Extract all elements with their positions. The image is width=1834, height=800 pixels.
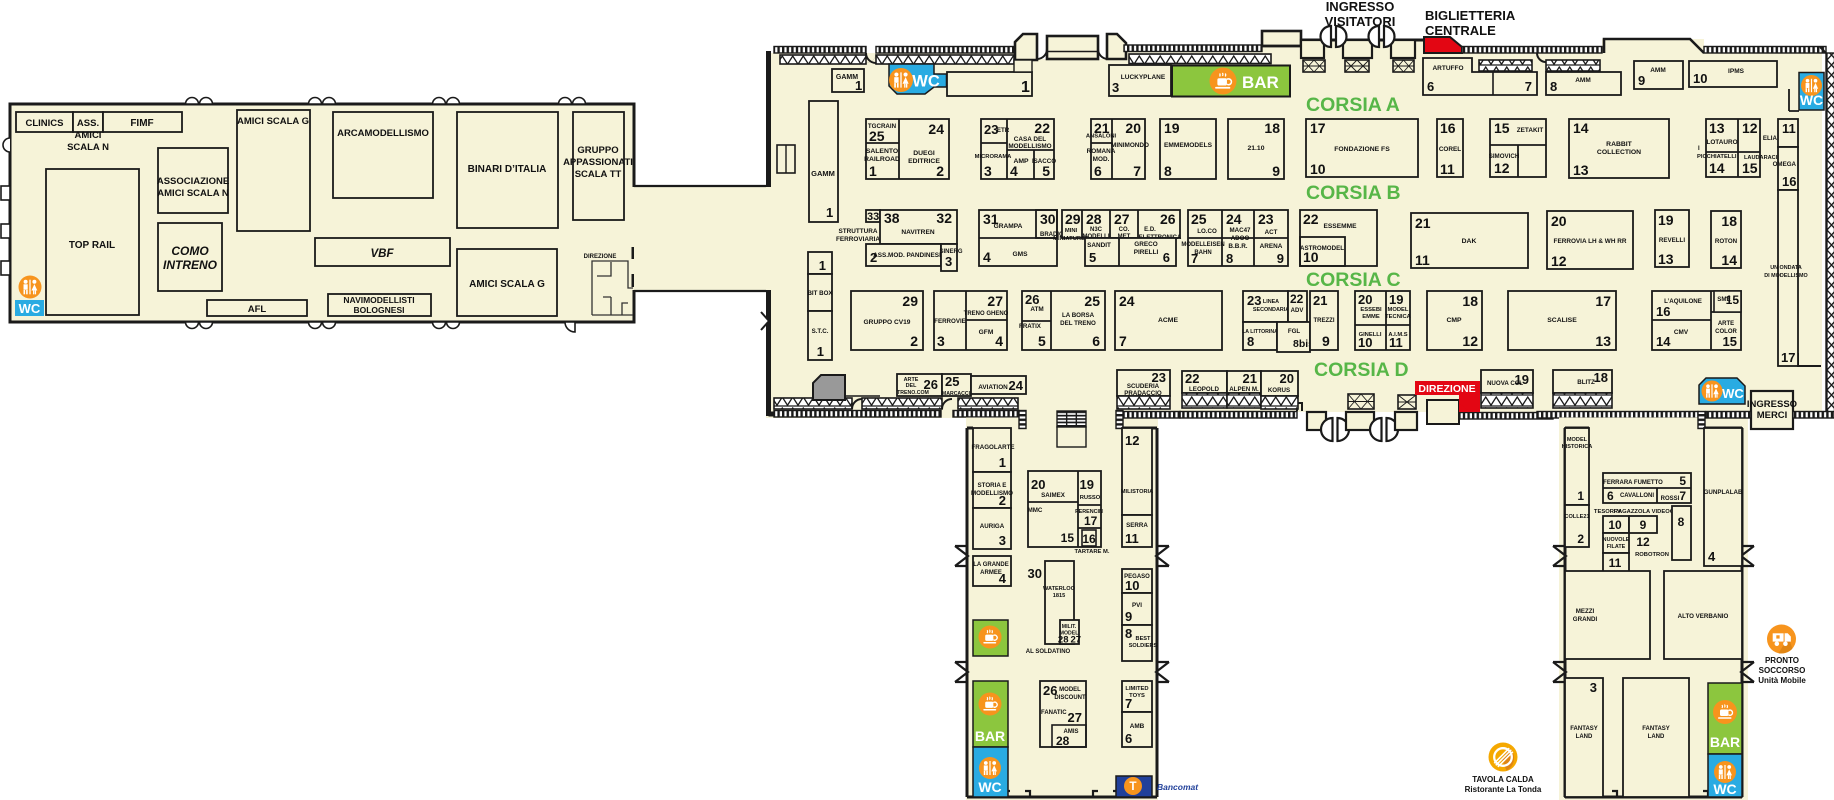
svg-text:RAGAZZOLA: RAGAZZOLA: [1614, 509, 1651, 515]
svg-text:ARTUFFO: ARTUFFO: [1432, 65, 1463, 72]
svg-text:5: 5: [1089, 250, 1096, 265]
svg-text:DUEGI: DUEGI: [913, 150, 935, 157]
svg-text:CORSIA C: CORSIA C: [1306, 269, 1401, 291]
svg-text:INGRESSO: INGRESSO: [1326, 0, 1395, 14]
svg-text:NAVITREN: NAVITREN: [901, 229, 934, 236]
svg-text:16: 16: [1082, 532, 1096, 546]
svg-text:13: 13: [1709, 120, 1725, 136]
svg-text:AL SOLDATINO: AL SOLDATINO: [1026, 649, 1071, 655]
svg-text:S.T.C.: S.T.C.: [812, 328, 829, 335]
svg-text:MOD.: MOD.: [1093, 156, 1110, 163]
svg-text:8: 8: [1247, 334, 1254, 349]
svg-text:3: 3: [1112, 80, 1119, 95]
svg-text:ADOO: ADOO: [1231, 235, 1250, 242]
svg-text:17: 17: [1781, 350, 1795, 365]
svg-text:7: 7: [1525, 79, 1532, 94]
svg-text:15: 15: [1723, 334, 1737, 349]
svg-text:ASSOCIAZIONE: ASSOCIAZIONE: [157, 176, 229, 187]
svg-text:8: 8: [1125, 626, 1132, 641]
svg-text:ADV: ADV: [1291, 308, 1304, 314]
svg-text:11: 11: [1440, 161, 1455, 177]
svg-text:TOP RAIL: TOP RAIL: [69, 240, 115, 251]
svg-text:20: 20: [1125, 120, 1141, 136]
svg-text:LA BORSA: LA BORSA: [1062, 312, 1095, 319]
svg-text:15: 15: [1494, 120, 1510, 136]
svg-text:BLITZ: BLITZ: [1577, 379, 1595, 386]
svg-text:ALPEN M.: ALPEN M.: [1229, 386, 1259, 393]
svg-text:19: 19: [1164, 120, 1180, 136]
svg-text:ARENA: ARENA: [1260, 243, 1283, 250]
svg-text:10: 10: [1358, 335, 1372, 350]
svg-text:RAILROAD: RAILROAD: [864, 156, 900, 163]
svg-text:14: 14: [1656, 334, 1671, 349]
svg-text:MAC47: MAC47: [1230, 227, 1252, 234]
svg-text:12: 12: [1742, 120, 1758, 136]
svg-text:16: 16: [1440, 120, 1456, 136]
svg-text:TAVOLA CALDA: TAVOLA CALDA: [1472, 775, 1534, 784]
svg-text:21: 21: [1313, 293, 1327, 308]
svg-text:GRECO: GRECO: [1134, 241, 1157, 248]
svg-text:9: 9: [1640, 518, 1647, 532]
svg-text:19: 19: [1080, 477, 1094, 492]
svg-text:12: 12: [1551, 253, 1567, 269]
svg-text:9: 9: [1272, 163, 1280, 179]
svg-text:AMM: AMM: [1575, 77, 1591, 84]
svg-text:30: 30: [1028, 566, 1042, 581]
svg-text:28: 28: [1058, 635, 1069, 646]
svg-text:UN ONDATA: UN ONDATA: [1770, 265, 1802, 271]
svg-text:FERROVIE: FERROVIE: [934, 318, 966, 325]
svg-text:1: 1: [855, 78, 862, 93]
svg-text:SANDIT: SANDIT: [1087, 242, 1111, 249]
svg-text:21: 21: [1415, 215, 1431, 231]
svg-text:CMV: CMV: [1674, 329, 1689, 336]
svg-text:STORIA E: STORIA E: [978, 482, 1007, 489]
svg-text:BAR: BAR: [975, 728, 1005, 744]
svg-text:GFM: GFM: [979, 329, 994, 336]
svg-text:10: 10: [1310, 161, 1326, 177]
svg-text:Bancomat: Bancomat: [1157, 782, 1199, 792]
svg-text:KORUS: KORUS: [1268, 387, 1290, 394]
svg-text:MODELLISMO: MODELLISMO: [1008, 143, 1051, 150]
svg-text:9: 9: [1322, 333, 1330, 349]
svg-text:DEL: DEL: [906, 383, 917, 389]
svg-text:FERRARA FUMETTO: FERRARA FUMETTO: [1603, 480, 1663, 486]
svg-text:19: 19: [1658, 212, 1674, 228]
svg-text:MODEL: MODEL: [1388, 307, 1409, 313]
svg-text:3: 3: [1590, 680, 1597, 695]
svg-text:9: 9: [1638, 73, 1645, 88]
svg-text:COLLE21: COLLE21: [1564, 514, 1589, 520]
svg-text:LO.CO: LO.CO: [1197, 228, 1217, 235]
svg-text:CORSIA B: CORSIA B: [1306, 182, 1401, 204]
svg-text:MERCI: MERCI: [1757, 410, 1788, 421]
svg-text:GRAMPA: GRAMPA: [994, 223, 1023, 230]
svg-text:6: 6: [1125, 731, 1132, 746]
svg-text:SECONDARIA: SECONDARIA: [1253, 307, 1289, 313]
svg-text:IPMS: IPMS: [1728, 68, 1745, 75]
svg-text:17: 17: [1595, 293, 1611, 309]
svg-text:PIRELLI: PIRELLI: [1134, 249, 1159, 256]
svg-text:MODELLISMO: MODELLISMO: [971, 490, 1013, 497]
svg-text:CAVALLONI: CAVALLONI: [1620, 493, 1654, 499]
svg-text:ARCAMODELLISMO: ARCAMODELLISMO: [337, 128, 429, 139]
svg-text:COLLECTION: COLLECTION: [1597, 149, 1641, 156]
svg-text:11: 11: [1782, 121, 1796, 136]
svg-text:24: 24: [1009, 378, 1024, 393]
svg-text:6: 6: [1163, 250, 1170, 265]
svg-text:25: 25: [945, 374, 959, 389]
svg-text:AMICI SCALA G: AMICI SCALA G: [237, 116, 309, 127]
svg-text:WC: WC: [1722, 386, 1744, 401]
svg-text:22: 22: [1185, 371, 1199, 386]
svg-text:SERRA: SERRA: [1126, 522, 1148, 529]
svg-text:SALENTO: SALENTO: [866, 148, 898, 155]
svg-text:ROSSI: ROSSI: [1661, 496, 1680, 502]
svg-text:MARCACCI: MARCACCI: [942, 391, 971, 397]
svg-text:7: 7: [1679, 489, 1686, 503]
svg-text:7: 7: [1119, 333, 1127, 349]
svg-text:17: 17: [1310, 120, 1326, 136]
svg-text:5: 5: [1042, 163, 1050, 179]
svg-text:INGRESSO: INGRESSO: [1747, 399, 1797, 410]
svg-text:28: 28: [1056, 734, 1070, 748]
svg-text:MODEL: MODEL: [1059, 687, 1081, 693]
svg-text:PRONTO: PRONTO: [1765, 656, 1799, 665]
svg-text:ASS.MOD. PANDINESI: ASS.MOD. PANDINESI: [873, 252, 941, 259]
svg-text:21: 21: [1243, 371, 1257, 386]
svg-text:4: 4: [1708, 549, 1716, 564]
svg-text:TRENO GHENO: TRENO GHENO: [964, 311, 1009, 317]
svg-text:3: 3: [945, 254, 952, 269]
svg-text:FIMF: FIMF: [130, 118, 153, 129]
svg-text:DAK: DAK: [1462, 238, 1477, 245]
svg-text:1815: 1815: [1053, 593, 1065, 599]
svg-text:26: 26: [1025, 292, 1039, 307]
svg-text:1: 1: [817, 344, 824, 359]
svg-text:27: 27: [1071, 635, 1082, 646]
svg-text:ALTO VERBANIO: ALTO VERBANIO: [1678, 613, 1729, 620]
svg-text:10: 10: [1608, 518, 1622, 532]
svg-text:BAR: BAR: [1242, 73, 1279, 92]
svg-text:COREL: COREL: [1439, 146, 1461, 153]
svg-text:BEST: BEST: [1136, 636, 1152, 642]
svg-text:14: 14: [1573, 120, 1589, 136]
svg-text:CLINICS: CLINICS: [26, 118, 64, 129]
svg-text:1: 1: [999, 455, 1006, 470]
svg-text:12: 12: [1494, 160, 1510, 176]
svg-text:EMMEMODELS: EMMEMODELS: [1164, 142, 1213, 149]
svg-text:1: 1: [1021, 79, 1030, 96]
svg-text:13: 13: [1595, 333, 1611, 349]
svg-text:3: 3: [937, 333, 945, 349]
svg-text:11: 11: [1125, 531, 1139, 546]
svg-text:BAR: BAR: [1710, 734, 1740, 750]
svg-text:COMO: COMO: [171, 244, 209, 258]
svg-text:25: 25: [869, 128, 885, 144]
svg-text:GUNPLALAB: GUNPLALAB: [1704, 489, 1743, 496]
svg-text:8: 8: [1226, 251, 1233, 266]
svg-text:1: 1: [1577, 489, 1584, 503]
svg-text:15: 15: [1726, 293, 1740, 307]
svg-text:11: 11: [1389, 335, 1403, 350]
svg-text:DI MODELLISMO: DI MODELLISMO: [1764, 273, 1807, 279]
svg-text:32: 32: [936, 210, 952, 226]
svg-text:ZETAKIT: ZETAKIT: [1517, 127, 1544, 134]
svg-text:8: 8: [1550, 79, 1557, 94]
svg-text:ACME: ACME: [1158, 317, 1178, 324]
svg-text:2: 2: [999, 493, 1006, 508]
svg-text:18: 18: [1594, 370, 1608, 385]
svg-text:CORSIA A: CORSIA A: [1306, 94, 1400, 116]
svg-text:22: 22: [1303, 211, 1319, 227]
svg-text:20: 20: [1358, 292, 1372, 307]
svg-text:4: 4: [995, 333, 1003, 349]
svg-text:Unità Mobile: Unità Mobile: [1758, 676, 1806, 685]
svg-text:5: 5: [1038, 333, 1046, 349]
svg-text:33: 33: [867, 211, 879, 223]
svg-text:TECNICA: TECNICA: [1385, 314, 1412, 320]
svg-text:ROTON: ROTON: [1715, 238, 1738, 245]
svg-text:MODELLEISEN: MODELLEISEN: [1181, 242, 1224, 248]
svg-text:MINIMONDO: MINIMONDO: [1111, 142, 1149, 149]
svg-text:CENTRALE: CENTRALE: [1425, 23, 1496, 38]
svg-text:3: 3: [984, 163, 992, 179]
svg-text:SIMOVICH: SIMOVICH: [1489, 153, 1520, 160]
svg-text:N3C: N3C: [1090, 227, 1103, 233]
svg-text:24: 24: [928, 121, 944, 137]
svg-text:MMC: MMC: [1028, 507, 1043, 514]
svg-text:PVI: PVI: [1132, 602, 1142, 609]
svg-text:12: 12: [1636, 535, 1650, 549]
svg-text:WC: WC: [19, 301, 41, 316]
svg-text:AMICI: AMICI: [75, 130, 102, 141]
svg-text:22: 22: [1290, 292, 1304, 306]
svg-text:LUCKYPLANE: LUCKYPLANE: [1121, 74, 1166, 81]
svg-text:23: 23: [1247, 293, 1261, 308]
svg-text:CO.: CO.: [1119, 227, 1130, 233]
svg-text:6: 6: [1094, 163, 1102, 179]
svg-text:BINARI D’ITALIA: BINARI D’ITALIA: [468, 164, 547, 175]
svg-text:20: 20: [1031, 477, 1045, 492]
svg-text:MILIT.: MILIT.: [1062, 624, 1077, 630]
svg-text:23: 23: [1258, 211, 1274, 227]
svg-text:4: 4: [999, 571, 1007, 586]
svg-text:10: 10: [1693, 71, 1707, 86]
svg-text:AURIGA: AURIGA: [980, 523, 1005, 530]
svg-text:11: 11: [1415, 252, 1430, 268]
svg-text:26: 26: [1160, 211, 1176, 227]
svg-text:20: 20: [1280, 371, 1294, 386]
svg-text:SCALA TT: SCALA TT: [575, 169, 622, 180]
svg-text:7: 7: [1191, 251, 1198, 266]
svg-text:LAND: LAND: [1576, 734, 1593, 740]
svg-text:13: 13: [1658, 251, 1674, 267]
svg-text:GAMM: GAMM: [811, 169, 835, 178]
svg-text:5: 5: [1679, 474, 1686, 488]
svg-text:TARTARE M.: TARTARE M.: [1075, 549, 1110, 555]
svg-text:LIMITED: LIMITED: [1125, 686, 1148, 692]
svg-text:10: 10: [1303, 249, 1319, 265]
svg-text:26: 26: [924, 377, 938, 392]
svg-text:9: 9: [1125, 609, 1132, 624]
svg-text:EMME: EMME: [1362, 314, 1380, 320]
svg-text:MINI: MINI: [1065, 228, 1078, 234]
svg-text:LA GRANDE: LA GRANDE: [973, 562, 1008, 568]
svg-text:RABBIT: RABBIT: [1606, 141, 1633, 148]
svg-text:ROMANA: ROMANA: [1087, 148, 1116, 155]
svg-text:AMM: AMM: [1650, 67, 1666, 74]
svg-text:27: 27: [1114, 211, 1130, 227]
svg-text:6: 6: [1427, 79, 1434, 94]
svg-text:13: 13: [1573, 162, 1589, 178]
svg-text:6: 6: [1607, 489, 1614, 503]
svg-text:GRANDI: GRANDI: [1573, 616, 1598, 623]
svg-text:22: 22: [1034, 120, 1050, 136]
svg-text:MICRORAMA: MICRORAMA: [975, 154, 1013, 160]
svg-text:SAIMEX: SAIMEX: [1041, 492, 1066, 499]
svg-text:ESSEMME: ESSEMME: [1324, 223, 1358, 230]
svg-text:24: 24: [1226, 211, 1242, 227]
svg-text:BOLOGNESI: BOLOGNESI: [353, 305, 404, 315]
svg-text:27: 27: [987, 293, 1003, 309]
svg-text:MODEL: MODEL: [1567, 437, 1588, 443]
svg-text:AMB: AMB: [1130, 723, 1145, 730]
svg-text:16: 16: [1782, 174, 1796, 189]
svg-text:ATM: ATM: [1030, 306, 1043, 313]
svg-text:7: 7: [1125, 696, 1132, 711]
svg-text:ESSEBI: ESSEBI: [1360, 307, 1382, 313]
svg-text:ACT: ACT: [1265, 229, 1278, 236]
svg-text:SCALISE: SCALISE: [1547, 317, 1577, 324]
svg-text:TREZZI: TREZZI: [1314, 318, 1335, 324]
svg-text:OMEGA: OMEGA: [1773, 161, 1797, 168]
svg-text:T: T: [1129, 780, 1137, 793]
svg-text:SOCCORSO: SOCCORSO: [1759, 666, 1806, 675]
svg-text:1: 1: [869, 163, 877, 179]
svg-text:AMICI SCALA N: AMICI SCALA N: [157, 188, 229, 199]
svg-text:WC: WC: [978, 779, 1001, 795]
svg-text:18: 18: [1264, 120, 1280, 136]
svg-text:LEOPOLD: LEOPOLD: [1189, 386, 1219, 393]
svg-text:VISITATORI: VISITATORI: [1325, 14, 1396, 29]
svg-text:30: 30: [1040, 211, 1056, 227]
svg-text:WC: WC: [1713, 781, 1736, 797]
svg-text:7: 7: [1133, 163, 1141, 179]
svg-text:FANTASY: FANTASY: [1642, 726, 1670, 732]
svg-text:SCUDERIA: SCUDERIA: [1127, 383, 1160, 390]
svg-text:FRATIX: FRATIX: [1019, 323, 1042, 330]
svg-text:FANATIC: FANATIC: [1041, 710, 1067, 716]
svg-text:ARTE: ARTE: [1718, 321, 1734, 327]
svg-text:BIT BOX: BIT BOX: [807, 290, 833, 297]
svg-text:19: 19: [1515, 372, 1529, 387]
svg-text:GRUPPO CV19: GRUPPO CV19: [864, 319, 911, 326]
svg-text:LINEA: LINEA: [1263, 299, 1279, 305]
svg-text:18: 18: [1721, 213, 1737, 229]
svg-text:LOTAURO: LOTAURO: [1706, 139, 1737, 146]
svg-text:DIREZIONE: DIREZIONE: [584, 254, 617, 260]
svg-text:MILISTORIA: MILISTORIA: [1121, 489, 1153, 495]
svg-text:WC: WC: [912, 73, 940, 91]
svg-text:FILATE: FILATE: [1607, 544, 1626, 550]
svg-text:17: 17: [1084, 514, 1098, 528]
svg-text:1: 1: [819, 258, 826, 273]
svg-text:11: 11: [1609, 556, 1622, 570]
svg-text:AFL: AFL: [248, 304, 267, 315]
svg-text:CORSIA D: CORSIA D: [1314, 359, 1409, 381]
svg-text:ASS.: ASS.: [77, 118, 99, 129]
svg-text:B.B.R.: B.B.R.: [1228, 243, 1247, 250]
svg-text:INTRENO: INTRENO: [163, 258, 218, 272]
svg-text:CASA DEL: CASA DEL: [1014, 136, 1047, 143]
svg-text:12: 12: [1462, 333, 1478, 349]
svg-text:FANTASY: FANTASY: [1570, 726, 1598, 732]
svg-text:DISCOUNT: DISCOUNT: [1054, 695, 1086, 701]
svg-text:HISTORICA: HISTORICA: [1562, 444, 1593, 450]
svg-text:Ristorante La Tonda: Ristorante La Tonda: [1465, 785, 1542, 794]
svg-text:APPASSIONATI: APPASSIONATI: [563, 157, 633, 168]
svg-text:FRAGOLARTE: FRAGOLARTE: [972, 444, 1015, 451]
svg-text:ROBOTRON: ROBOTRON: [1635, 552, 1669, 558]
svg-text:12: 12: [1125, 433, 1139, 448]
svg-text:24: 24: [1119, 293, 1135, 309]
svg-text:ANSALONI: ANSALONI: [1086, 134, 1117, 140]
svg-text:1: 1: [826, 205, 833, 220]
svg-text:9: 9: [1277, 251, 1284, 266]
svg-text:8: 8: [1164, 163, 1172, 179]
svg-text:LAND: LAND: [1648, 734, 1665, 740]
svg-text:AMICI SCALA G: AMICI SCALA G: [469, 279, 545, 290]
svg-text:14: 14: [1709, 160, 1725, 176]
svg-text:GRUPPO: GRUPPO: [577, 145, 618, 156]
svg-text:RUSSO: RUSSO: [1080, 495, 1101, 501]
svg-text:SOLDIERS: SOLDIERS: [1129, 643, 1158, 649]
svg-text:FERROVIARIA: FERROVIARIA: [836, 236, 880, 243]
svg-text:VBF: VBF: [371, 248, 395, 260]
svg-text:6: 6: [1092, 333, 1100, 349]
svg-text:GMS: GMS: [1012, 251, 1028, 258]
svg-text:STRUTTURA: STRUTTURA: [838, 228, 877, 235]
svg-text:AVIATION: AVIATION: [978, 384, 1008, 391]
svg-text:DEL TRENO: DEL TRENO: [1060, 320, 1096, 327]
svg-text:38: 38: [884, 210, 900, 226]
svg-text:2: 2: [910, 333, 918, 349]
svg-text:FERROVIA LH & WH RR: FERROVIA LH & WH RR: [1554, 238, 1627, 245]
svg-text:19: 19: [1389, 292, 1403, 307]
svg-text:WATERLOO: WATERLOO: [1043, 586, 1076, 592]
svg-text:15: 15: [1742, 160, 1758, 176]
svg-text:E.D.: E.D.: [1144, 227, 1156, 233]
svg-text:25: 25: [1191, 211, 1207, 227]
svg-text:28: 28: [1086, 211, 1102, 227]
svg-text:ETR: ETR: [997, 127, 1010, 134]
svg-text:2: 2: [936, 163, 944, 179]
svg-text:4: 4: [1010, 163, 1018, 179]
svg-text:10: 10: [1125, 578, 1139, 593]
svg-text:25: 25: [1084, 293, 1100, 309]
svg-text:WC: WC: [1800, 92, 1823, 108]
svg-text:SCALA N: SCALA N: [67, 142, 109, 153]
svg-text:8: 8: [1678, 515, 1685, 529]
svg-text:BIGLIETTERIA: BIGLIETTERIA: [1425, 8, 1516, 23]
svg-text:REVELLI: REVELLI: [1659, 237, 1685, 244]
svg-text:DIREZIONE: DIREZIONE: [1418, 383, 1475, 395]
svg-text:16: 16: [1656, 304, 1670, 319]
svg-text:29: 29: [902, 293, 918, 309]
svg-text:NUOVOLE: NUOVOLE: [1603, 537, 1630, 543]
svg-text:20: 20: [1551, 213, 1567, 229]
